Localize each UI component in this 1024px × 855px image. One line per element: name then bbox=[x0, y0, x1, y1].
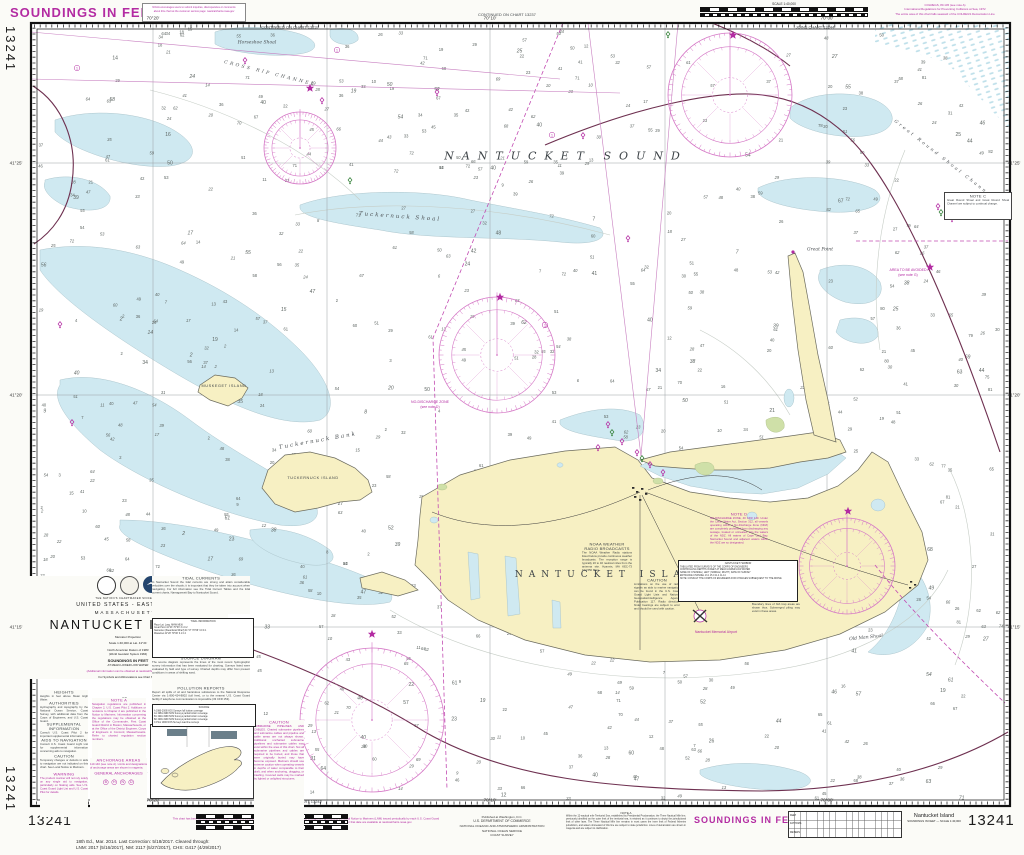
sounding-number: 60 bbox=[113, 303, 118, 308]
sounding-number: 10 bbox=[546, 83, 551, 88]
sounding-number: 52 bbox=[391, 614, 396, 619]
sounding-number: 12 bbox=[262, 523, 267, 528]
sounding-number: 23 bbox=[229, 536, 235, 542]
sounding-number: 75 bbox=[985, 375, 990, 380]
coordinate-label: 41°25' bbox=[1008, 161, 1021, 166]
sounding-number: 23 bbox=[160, 543, 166, 548]
sounding-number: 63 bbox=[691, 747, 696, 752]
colregs-note: COLREGS, 80.145 (see note A) Internation… bbox=[872, 3, 1018, 16]
sounding-number: 63 bbox=[446, 254, 451, 259]
sounding-number: 63 bbox=[338, 510, 343, 515]
sounding-number: 71 bbox=[423, 56, 428, 61]
sounding-number: 21 bbox=[658, 385, 663, 390]
sounding-number: 59 bbox=[150, 151, 155, 156]
sounding-number: 40 bbox=[537, 122, 543, 128]
sounding-number: 41 bbox=[592, 271, 598, 277]
sounding-number: 37 bbox=[39, 143, 44, 148]
sounding-number: 47 bbox=[700, 343, 705, 348]
sounding-number: 26 bbox=[528, 179, 534, 184]
sounding-number: 29 bbox=[937, 765, 943, 770]
sounding-number: 43 bbox=[387, 134, 392, 139]
anchorage-letter: B bbox=[103, 779, 109, 785]
sounding-number: 66 bbox=[946, 600, 951, 605]
sounding-number: 72 bbox=[70, 238, 75, 243]
sounding-number: 42 bbox=[471, 249, 477, 255]
sounding-number: 62 bbox=[860, 367, 865, 372]
sounding-number: 20 bbox=[828, 84, 833, 89]
sounding-number: 50 bbox=[678, 680, 683, 685]
publisher-block: Published at Washington, D.C. U.S. DEPAR… bbox=[446, 815, 558, 837]
sounding-number: 19 bbox=[39, 307, 44, 312]
sounding-number: 64 bbox=[181, 241, 186, 246]
sounding-number: 40 bbox=[573, 268, 578, 273]
map-label: AREA TO BE AVOIDED bbox=[890, 268, 927, 272]
sounding-number: 64 bbox=[236, 496, 241, 501]
anchorage-letter: H bbox=[112, 779, 118, 785]
sounding-number: 45 bbox=[911, 348, 916, 353]
sounding-number: 34 bbox=[272, 448, 277, 453]
sounding-number: 47 bbox=[86, 190, 91, 195]
sounding-number: 48 bbox=[719, 195, 724, 200]
sounding-number: 43 bbox=[223, 299, 228, 304]
sounding-number: 12 bbox=[649, 734, 654, 739]
sounding-number: 44 bbox=[967, 139, 973, 145]
sounding-number: 41 bbox=[552, 419, 557, 424]
sounding-number: 19 bbox=[879, 416, 884, 421]
sounding-number: 8 bbox=[364, 410, 367, 416]
sounding-number: 64 bbox=[86, 97, 91, 102]
sounding-number: 50 bbox=[167, 161, 173, 167]
sounding-number: 41 bbox=[851, 648, 857, 654]
bottom-right-sub: SOUNDINGS IN FEET — SCALE 1:40,000 bbox=[904, 819, 964, 823]
sounding-number: 37 bbox=[630, 124, 635, 129]
sounding-number: 27 bbox=[401, 205, 406, 210]
sounding-number: 48 bbox=[824, 36, 829, 41]
sounding-number: 22 bbox=[283, 104, 288, 109]
sounding-number: 44 bbox=[634, 717, 639, 722]
sounding-number: 49 bbox=[929, 586, 935, 592]
sounding-number: 64 bbox=[125, 557, 130, 562]
sounding-number: 36 bbox=[252, 211, 257, 216]
airport-symbol bbox=[693, 610, 707, 622]
sounding-number: 65 bbox=[818, 712, 823, 717]
sounding-number: 28 bbox=[704, 757, 710, 762]
sounding-number: 58 bbox=[409, 230, 414, 235]
sounding-number: 23 bbox=[122, 498, 127, 503]
sounding-number: 14 bbox=[234, 327, 239, 332]
sounding-number: 12 bbox=[584, 43, 589, 48]
map-label: Horseshoe Shoal bbox=[238, 41, 277, 46]
sounding-number: 53 bbox=[81, 556, 86, 561]
sounding-number: 54 bbox=[679, 445, 684, 450]
inquiry-note-line2: about this chart at the customer service… bbox=[143, 10, 245, 14]
colregs-line3: The entire area of this chart falls seaw… bbox=[872, 12, 1018, 16]
sounding-number: 26 bbox=[862, 741, 868, 746]
sounding-number: 60 bbox=[95, 524, 100, 529]
sounding-number: 34 bbox=[166, 31, 171, 36]
sounding-number: 52 bbox=[700, 699, 706, 705]
sounding-number: 58 bbox=[386, 474, 391, 479]
sounding-number: 30 bbox=[490, 736, 495, 741]
sounding-number: 80 bbox=[884, 359, 889, 364]
sounding-number: 40 bbox=[42, 402, 47, 407]
sounding-number: 35 bbox=[107, 137, 112, 142]
sounding-number: 23 bbox=[343, 561, 348, 566]
sounding-number: 52 bbox=[853, 397, 858, 402]
sounding-number: 37 bbox=[569, 765, 574, 770]
sounding-number: 57 bbox=[871, 316, 876, 321]
sounding-number: 22 bbox=[894, 177, 899, 182]
sounding-number: 57 bbox=[319, 624, 324, 629]
sounding-number: 21 bbox=[165, 49, 171, 54]
sounding-number: 49 bbox=[214, 527, 219, 532]
sounding-number: 41 bbox=[578, 60, 583, 65]
sounding-number: 17 bbox=[155, 432, 160, 437]
sounding-number: 10 bbox=[328, 636, 333, 641]
coordinate-label: 41°20' bbox=[1008, 393, 1021, 398]
sounding-number: 61 bbox=[479, 463, 484, 468]
note-a-block: NOTE A Within the 12-nautical mile Terri… bbox=[566, 812, 686, 849]
sounding-number: 27 bbox=[471, 209, 476, 214]
sounding-number: 69 bbox=[617, 680, 622, 685]
sounding-number: 40 bbox=[490, 166, 496, 172]
sounding-number: 28 bbox=[702, 686, 708, 691]
sounding-number: 14 bbox=[148, 330, 154, 336]
sounding-number: 36 bbox=[339, 93, 344, 98]
sounding-number: 33 bbox=[399, 30, 404, 35]
sounding-number: 33 bbox=[930, 313, 935, 318]
source-diagram-inset bbox=[150, 724, 254, 799]
sounding-number: 18 bbox=[179, 29, 184, 34]
sounding-number: 61 bbox=[948, 678, 954, 684]
sounding-number: 81 bbox=[922, 75, 927, 80]
sounding-number: 24 bbox=[931, 120, 937, 125]
sounding-number: 11 bbox=[262, 177, 267, 182]
coordinate-label: 70°10' bbox=[484, 798, 497, 803]
sounding-number: 71 bbox=[575, 76, 580, 81]
sounding-number: 47 bbox=[361, 589, 367, 595]
sounding-number: 23 bbox=[463, 288, 469, 293]
sounding-number: 56 bbox=[41, 263, 47, 269]
conv-fathoms-label: FATHOMS bbox=[790, 820, 801, 828]
sounding-number: 52 bbox=[424, 647, 429, 652]
sounding-number: 54 bbox=[556, 344, 561, 349]
sounding-number: 64 bbox=[610, 379, 615, 384]
sounding-number: 44 bbox=[979, 368, 985, 374]
sounding-number: 51 bbox=[554, 309, 559, 314]
sounding-number: 42 bbox=[775, 270, 780, 275]
sounding-number: 39 bbox=[560, 170, 565, 175]
sounding-number: 67 bbox=[254, 114, 259, 119]
sounding-number: 54 bbox=[44, 473, 49, 478]
sounding-number: 25 bbox=[854, 449, 859, 454]
sounding-number: 60 bbox=[372, 756, 377, 761]
sounding-number: 23 bbox=[843, 106, 848, 111]
sounding-number: 74 bbox=[999, 624, 1004, 629]
sounding-number: 28 bbox=[605, 755, 611, 760]
sounding-number: 40 bbox=[260, 100, 266, 106]
sounding-number: 53 bbox=[552, 390, 557, 395]
sounding-number: 51 bbox=[896, 410, 901, 415]
sounding-number: 57 bbox=[540, 649, 545, 654]
sounding-number: 15 bbox=[355, 447, 360, 452]
sounding-number: 55 bbox=[245, 250, 251, 256]
sounding-number: 49 bbox=[137, 296, 142, 301]
sounding-number: 53 bbox=[164, 175, 169, 180]
sounding-number: 27 bbox=[680, 237, 686, 242]
sounding-number: 29 bbox=[848, 427, 853, 432]
sounding-number: 21 bbox=[89, 180, 94, 185]
sounding-number: 67 bbox=[940, 500, 945, 505]
sounding-number: 55 bbox=[694, 272, 699, 277]
sounding-number: 62 bbox=[531, 114, 536, 119]
sounding-number: 82 bbox=[988, 149, 993, 154]
sounding-number: 13 bbox=[269, 368, 274, 373]
sounding-number: 72 bbox=[155, 564, 160, 569]
coordinate-label: 70°20' bbox=[147, 16, 160, 21]
sounding-number: 60 bbox=[591, 234, 596, 239]
sounding-number: 51 bbox=[73, 394, 78, 399]
sounding-number: 49 bbox=[730, 685, 735, 690]
sounding-number: 58 bbox=[253, 273, 258, 278]
conversion-table: FEET FATHOMS METERS bbox=[788, 811, 902, 838]
sounding-number: 42 bbox=[465, 108, 470, 113]
sounding-number: 51 bbox=[514, 355, 519, 360]
sounding-number: 19 bbox=[351, 88, 357, 94]
sounding-number: 33 bbox=[361, 84, 366, 89]
sounding-number: 69 bbox=[496, 76, 501, 81]
soundings-in-feet-top: SOUNDINGS IN FEET bbox=[10, 5, 159, 20]
sounding-number: 14 bbox=[196, 239, 201, 244]
sounding-number: 2 bbox=[189, 352, 193, 358]
sounding-number: 40 bbox=[958, 357, 963, 362]
sounding-number: 54 bbox=[335, 386, 340, 391]
sounding-number: 61 bbox=[284, 327, 289, 332]
sounding-number: 39 bbox=[826, 159, 831, 164]
sounding-number: 35 bbox=[357, 595, 362, 600]
sounding-number: 61 bbox=[686, 60, 691, 65]
sounding-number: 57 bbox=[703, 195, 708, 200]
sounding-number: 23 bbox=[703, 118, 708, 123]
sounding-number: 50 bbox=[682, 398, 688, 404]
sounding-number: 49 bbox=[567, 671, 572, 676]
sounding-number: 17 bbox=[188, 231, 194, 237]
note-a-body: Within the 12-nautical mile Territorial … bbox=[566, 815, 686, 831]
data-table: SOURCEA 1980-2009 NOS Surveys full botto… bbox=[152, 704, 256, 727]
sounding-number: 27 bbox=[972, 564, 977, 569]
map-label: JOINS CHART 13244 bbox=[796, 25, 835, 30]
sounding-number: 53 bbox=[100, 232, 105, 237]
sounding-number: 42 bbox=[508, 107, 513, 112]
sounding-number: 30 bbox=[682, 274, 687, 279]
sounding-number: 37 bbox=[203, 360, 208, 365]
sounding-number: 13 bbox=[722, 785, 727, 790]
sounding-number: 36 bbox=[896, 326, 901, 331]
sounding-number: 55 bbox=[630, 281, 635, 286]
sounding-number: 62 bbox=[895, 250, 900, 255]
sounding-number: 63 bbox=[136, 244, 141, 249]
sounding-number: 28 bbox=[70, 180, 76, 185]
sounding-number: 70 bbox=[678, 380, 683, 385]
sounding-number: 60 bbox=[307, 429, 312, 434]
sounding-number: 31 bbox=[161, 390, 166, 395]
sounding-number: 25 bbox=[892, 307, 899, 313]
sounding-number: 67 bbox=[838, 199, 844, 205]
sounding-number: 29 bbox=[115, 78, 120, 83]
sounding-number: 24 bbox=[166, 116, 172, 121]
sounding-number: 39 bbox=[513, 191, 518, 196]
sounding-number: 22 bbox=[89, 478, 95, 483]
sounding-number: 29 bbox=[388, 328, 393, 333]
sounding-number: 72 bbox=[409, 150, 414, 155]
sounding-number: 57 bbox=[710, 83, 715, 88]
sounding-number: 57 bbox=[403, 700, 409, 706]
sounding-number: 64 bbox=[90, 469, 95, 474]
sounding-number: 34 bbox=[656, 368, 662, 374]
sounding-number: 36 bbox=[219, 102, 224, 107]
sounding-number: 53 bbox=[767, 269, 772, 274]
sounding-number: 12 bbox=[667, 335, 672, 340]
sounding-number: 55 bbox=[80, 208, 85, 213]
sounding-number: 46 bbox=[38, 163, 43, 168]
sounding-number: 39 bbox=[510, 321, 515, 326]
sounding-number: 63 bbox=[926, 779, 932, 785]
sounding-number: 33 bbox=[135, 194, 140, 199]
sounding-number: 15 bbox=[281, 307, 287, 313]
sounding-number: 56 bbox=[744, 661, 749, 666]
sounding-number: 33 bbox=[404, 134, 409, 139]
sounding-number: 51 bbox=[590, 254, 595, 259]
sounding-number: 62 bbox=[996, 610, 1001, 615]
sounding-number: 36 bbox=[136, 314, 141, 319]
chart-note: NOAA WEATHER RADIO BROADCASTSThe NOAA We… bbox=[582, 542, 632, 603]
sounding-number: 27 bbox=[831, 54, 838, 60]
sounding-number: 48 bbox=[891, 419, 896, 424]
sounding-number: 70 bbox=[346, 705, 351, 710]
chart-note: ANCHORAGE AREAS110.140 (see note A). Lim… bbox=[90, 758, 147, 813]
sounding-number: 23 bbox=[868, 628, 873, 633]
sounding-number: 36 bbox=[900, 776, 905, 781]
sounding-number: 51 bbox=[690, 261, 695, 266]
sounding-number: 45 bbox=[431, 125, 436, 130]
sounding-number: 23 bbox=[451, 716, 457, 722]
coordinate-label: 70°10' bbox=[484, 16, 497, 21]
sounding-number: 21 bbox=[779, 138, 784, 143]
sounding-number: 14 bbox=[310, 790, 315, 795]
sounding-number: 58 bbox=[109, 97, 115, 103]
sounding-number: 54 bbox=[890, 283, 895, 288]
sounding-number: 24 bbox=[302, 274, 308, 279]
sounding-number: 24 bbox=[189, 74, 196, 80]
sounding-number: 34 bbox=[70, 192, 75, 197]
commerce-seal-icon bbox=[97, 576, 116, 595]
sounding-number: 35 bbox=[454, 113, 459, 118]
sounding-number: 49 bbox=[462, 357, 467, 362]
sounding-number: 55 bbox=[648, 127, 653, 132]
sounding-number: 43 bbox=[346, 657, 351, 662]
sounding-number: 49 bbox=[180, 260, 185, 265]
conv-meters-label: METERS bbox=[790, 829, 801, 837]
sounding-number: 71 bbox=[245, 75, 250, 80]
sounding-number: 41 bbox=[903, 381, 908, 386]
svg-text:1: 1 bbox=[336, 48, 338, 52]
sounding-number: 57 bbox=[856, 692, 862, 698]
sounding-number: 32 bbox=[615, 60, 620, 65]
sounding-number: 11 bbox=[558, 163, 562, 168]
sounding-number: 29 bbox=[307, 723, 313, 728]
sounding-number: 81 bbox=[946, 495, 951, 500]
sounding-number: 10 bbox=[717, 428, 722, 433]
sounding-number: 62 bbox=[976, 608, 981, 613]
sounding-number: 29 bbox=[152, 320, 157, 325]
sounding-number: 72 bbox=[394, 168, 399, 173]
sounding-number: 47 bbox=[106, 154, 111, 159]
sounding-number: 42 bbox=[420, 61, 425, 66]
sounding-number: 72 bbox=[549, 214, 554, 219]
sounding-number: 18 bbox=[258, 392, 263, 397]
sounding-number: 49 bbox=[258, 94, 263, 99]
sounding-number: 32 bbox=[204, 346, 209, 351]
sounding-number: 38 bbox=[904, 280, 910, 286]
sounding-number: 31 bbox=[990, 532, 995, 537]
sounding-number: 39 bbox=[508, 432, 513, 437]
sounding-number: 45 bbox=[257, 668, 262, 673]
sounding-number: 65 bbox=[855, 209, 860, 214]
sounding-number: 26 bbox=[955, 606, 960, 611]
sounding-number: 72 bbox=[562, 272, 567, 277]
sounding-number: 40 bbox=[736, 187, 741, 192]
sounding-number: 66 bbox=[930, 701, 935, 706]
sounding-number: 37 bbox=[854, 230, 859, 235]
publisher-noaa: NATIONAL OCEANIC AND ATMOSPHERIC ADMINIS… bbox=[446, 824, 558, 828]
sounding-number: 54 bbox=[926, 672, 932, 678]
sounding-number: 67 bbox=[359, 273, 364, 278]
sounding-number: 40 bbox=[592, 773, 598, 779]
sounding-number: 47 bbox=[133, 401, 138, 406]
sounding-number: 68 bbox=[854, 778, 859, 783]
sounding-number: 57 bbox=[256, 316, 261, 321]
svg-text:1: 1 bbox=[76, 66, 78, 70]
map-label: (see note D) bbox=[420, 405, 439, 409]
top-scale-label: SCALE 1:40,000 bbox=[700, 2, 868, 6]
sounding-number: 2 bbox=[181, 531, 185, 537]
map-label: (see note G) bbox=[898, 273, 917, 277]
sounding-number: 40 bbox=[300, 564, 305, 569]
sounding-number: 52 bbox=[388, 526, 394, 532]
sounding-number: 46 bbox=[980, 120, 986, 126]
sounding-number: 48 bbox=[660, 746, 665, 751]
sounding-number: 48 bbox=[125, 512, 130, 517]
sounding-number: 39 bbox=[159, 423, 164, 428]
sounding-number: 67 bbox=[953, 706, 958, 711]
chart-number-left-top: 13241 bbox=[3, 26, 18, 72]
sounding-number: 40 bbox=[896, 767, 901, 772]
sounding-number: 11 bbox=[100, 402, 104, 407]
sounding-number: 29 bbox=[375, 435, 381, 440]
great-point-light bbox=[791, 250, 794, 253]
coordinate-label: 70°00' bbox=[821, 798, 834, 803]
sounding-number: 59 bbox=[629, 686, 634, 691]
sounding-number: 55 bbox=[236, 33, 241, 38]
sounding-number: 13 bbox=[604, 746, 609, 751]
sounding-number: 21 bbox=[882, 349, 887, 354]
sounding-number: 69 bbox=[239, 557, 244, 562]
sounding-number: 53 bbox=[610, 54, 615, 59]
sounding-number: 71 bbox=[293, 163, 298, 168]
sounding-number: 11 bbox=[497, 734, 501, 739]
coordinate-label: 70°00' bbox=[821, 16, 834, 21]
sounding-number: 45 bbox=[309, 127, 314, 132]
